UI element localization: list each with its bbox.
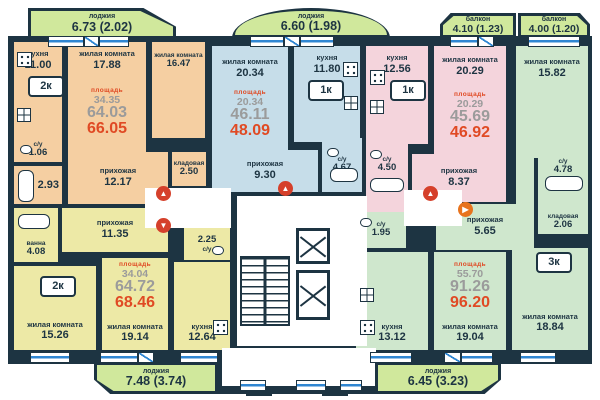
room-label: прихожая (97, 219, 133, 228)
entry-arrow-up-icon: ▲ (156, 186, 171, 201)
areas-pink: площадь 20.29 45.69 46.92 (436, 92, 504, 141)
balcony-door-window (84, 36, 99, 47)
area-full: 68.46 (104, 295, 166, 311)
room-hall-blue: прихожая 9.30 (212, 150, 318, 192)
room-label: кухня (316, 54, 337, 63)
room-area: 12.56 (383, 63, 411, 76)
room-area: 4.50 (378, 163, 397, 174)
room-label: жилая комната (79, 50, 135, 59)
room-label: прихожая (247, 160, 283, 169)
stove-icon (213, 320, 228, 335)
loggia-top-left: лоджия 6.73 (2.02) (28, 8, 176, 39)
window (100, 352, 138, 363)
room-area: 19.14 (121, 331, 149, 344)
staircase-icon (240, 256, 290, 326)
areas-blue: площадь 20.34 46.11 48.09 (214, 90, 286, 139)
window (370, 352, 412, 363)
room-area: 2.06 (554, 220, 573, 231)
room-area: 8.37 (448, 176, 469, 189)
room-area: 4.78 (554, 165, 573, 176)
room-area: 13.12 (378, 331, 406, 344)
window (250, 36, 284, 47)
floor-plan: лоджия 6.73 (2.02) лоджия 6.60 (1.98) ба… (0, 0, 600, 400)
room-label: кухня (386, 54, 407, 63)
kitchen-window-icon (370, 100, 384, 114)
window (180, 352, 218, 363)
room-area: 20.29 (456, 65, 484, 78)
bathtub-icon (18, 214, 50, 229)
window (99, 36, 129, 47)
room-area: 16.47 (167, 59, 191, 70)
bathtub-icon (545, 176, 583, 191)
balcony-a-body: балкон 4.10 (1.23) (443, 16, 513, 35)
room-label: прихожая (441, 167, 477, 176)
room-label: жилая комната (27, 321, 83, 330)
room-area: 12.17 (104, 176, 132, 189)
areas-green: площадь 55.70 91.26 96.20 (438, 262, 502, 311)
area-full: 66.05 (70, 121, 144, 137)
window (240, 380, 266, 391)
balcony-area: 4.00 (1.20) (529, 24, 580, 35)
room-label: жилая комната (222, 58, 278, 67)
toilet-icon (327, 148, 339, 157)
loggia-area: 7.48 (3.74) (126, 375, 186, 388)
loggia-area: 6.73 (2.02) (72, 21, 132, 34)
balcony-door-window (284, 36, 300, 47)
entry-arrow-right-icon: ▶ (458, 202, 473, 217)
window (340, 380, 362, 391)
room-area: 2.93 (38, 179, 59, 192)
room-area: 9.30 (254, 169, 275, 182)
room-storage-green: кладовая 2.06 (538, 210, 588, 234)
area-full: 46.92 (436, 125, 504, 141)
room-area: 11.80 (314, 63, 341, 76)
loggia-top-left-body: лоджия 6.73 (2.02) (31, 11, 173, 36)
room-label: прихожая (100, 167, 136, 176)
area-full: 96.20 (438, 295, 502, 311)
window (461, 352, 493, 363)
areas-orange: площадь 34.35 64.03 66.05 (70, 88, 144, 137)
window (520, 352, 556, 363)
entry-arrow-down-icon: ▼ (156, 218, 171, 233)
toilet-icon (360, 218, 372, 227)
room-area: 12.64 (188, 331, 216, 344)
kitchen-window-icon (360, 288, 374, 302)
entry-arrow-up-icon: ▲ (278, 181, 293, 196)
balcony-a: балкон 4.10 (1.23) (440, 13, 516, 38)
room-area: 19.04 (456, 331, 484, 344)
loggia-top-center: лоджия 6.60 (1.98) (232, 8, 390, 38)
loggia-top-center-body: лоджия 6.60 (1.98) (235, 11, 387, 35)
room-label: жилая комната (442, 323, 498, 332)
room-label: жилая комната (524, 58, 580, 67)
room-area: 4.08 (27, 247, 46, 258)
apartment-type-badge-orange: 2к (28, 76, 64, 97)
apartment-type-badge-blue: 1к (308, 80, 344, 101)
room-area: 18.84 (536, 321, 564, 334)
room-kitchen-yellow: кухня 12.64 (174, 262, 230, 350)
room-area: 20.34 (236, 67, 264, 80)
window (296, 380, 326, 391)
loggia-bottom-right: лоджия 6.45 (3.23) (375, 362, 501, 394)
room-living-b-orange: жилая комната 16.47 (152, 42, 205, 138)
balcony-door-window (478, 36, 494, 47)
kitchen-window-icon (344, 96, 358, 110)
stove-icon (360, 320, 375, 335)
areas-yellow: площадь 34.04 64.72 68.46 (104, 262, 166, 311)
kitchen-window-icon (17, 108, 31, 122)
stove-icon (17, 52, 32, 67)
loggia-area: 6.45 (3.23) (408, 375, 468, 388)
area-total: 46.11 (214, 107, 286, 123)
room-area: 17.88 (93, 59, 121, 72)
bathtub-icon (18, 170, 34, 202)
room-area: 11.35 (102, 228, 129, 241)
balcony-area: 4.10 (1.23) (453, 24, 504, 35)
area-full: 48.09 (214, 123, 286, 139)
loggia-bottom-left: лоджия 7.48 (3.74) (94, 362, 218, 394)
bathtub-icon (370, 178, 404, 192)
balcony-b-body: балкон 4.00 (1.20) (521, 16, 587, 35)
room-area: 1.95 (372, 228, 391, 239)
room-storage-orange: кладовая 2.50 (172, 152, 206, 186)
room-label: с/у (202, 246, 211, 253)
elevator-icon (296, 270, 330, 320)
apartment-type-badge-yellow: 2к (40, 276, 76, 297)
toilet-icon (20, 145, 32, 154)
balcony-door-window (444, 352, 461, 363)
window (48, 36, 84, 47)
area-total: 64.72 (104, 279, 166, 295)
toilet-icon (370, 150, 382, 159)
room-label: кухня (381, 323, 402, 332)
room-area: 5.65 (474, 225, 495, 238)
window (528, 36, 580, 47)
loggia-area: 6.60 (1.98) (281, 20, 341, 33)
window (30, 352, 70, 363)
elevator-icon (296, 228, 330, 264)
room-area: 2.50 (180, 167, 199, 178)
room-label: жилая комната (107, 323, 163, 332)
room-label: жилая комната (522, 313, 578, 322)
room-living-a-green: жилая комната 15.82 (516, 46, 588, 158)
apartment-type-badge-green: 3к (536, 252, 572, 273)
room-label: жилая комната (442, 56, 498, 65)
loggia-bottom-left-body: лоджия 7.48 (3.74) (97, 365, 215, 391)
room-area: 2.25 (198, 235, 217, 246)
apartment-type-badge-pink: 1к (390, 80, 426, 101)
loggia-bottom-right-body: лоджия 6.45 (3.23) (378, 365, 498, 391)
entry-arrow-up-icon: ▲ (423, 186, 438, 201)
bathtub-icon (330, 168, 358, 182)
area-total: 64.03 (70, 105, 144, 121)
area-total: 45.69 (436, 109, 504, 125)
window (300, 36, 334, 47)
window (450, 36, 478, 47)
room-wc-yellow: 2.25 с/у (184, 228, 230, 260)
room-label: кухня (191, 323, 212, 332)
area-total: 91.26 (438, 279, 502, 295)
room-label: прихожая (467, 216, 503, 225)
toilet-icon (212, 246, 224, 255)
room-area: 15.82 (538, 67, 566, 80)
room-area: 15.26 (41, 329, 69, 342)
stove-icon (370, 70, 385, 85)
balcony-door-window (138, 352, 154, 363)
balcony-b: балкон 4.00 (1.20) (518, 13, 590, 38)
room-wc-blue: с/у 4.67 (322, 138, 362, 192)
stove-icon (343, 62, 358, 77)
